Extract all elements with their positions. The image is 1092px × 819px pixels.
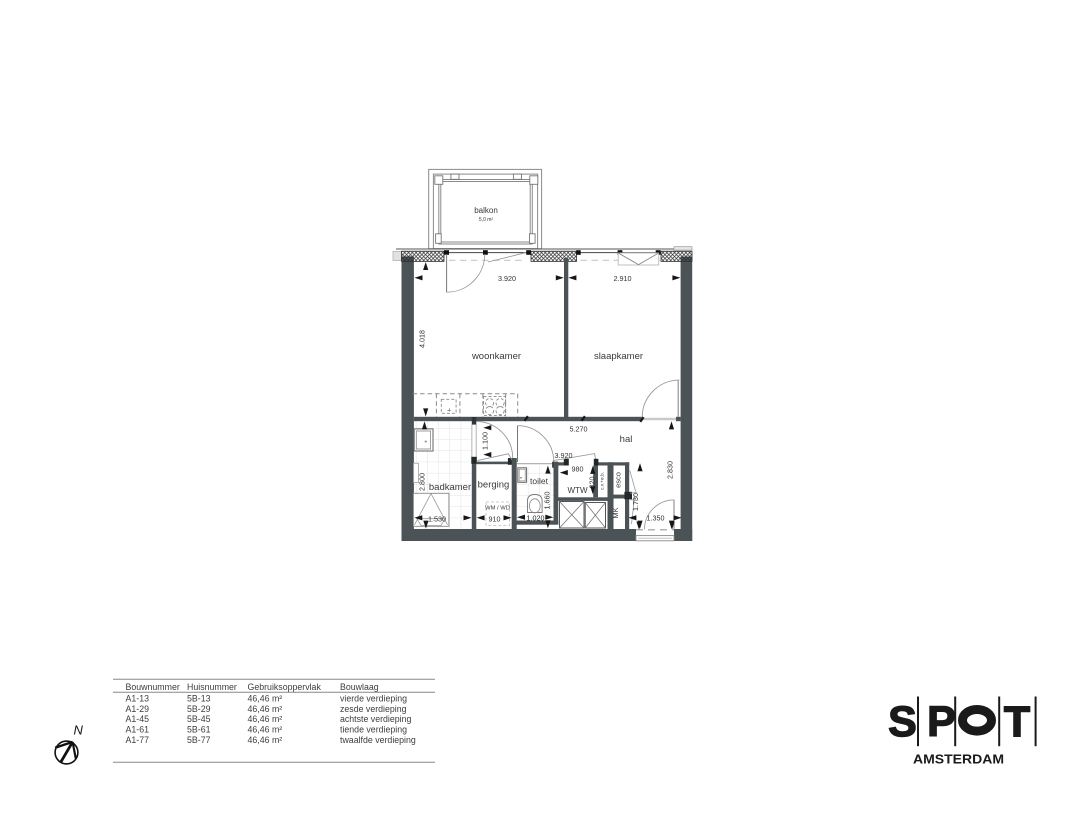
- svg-text:Huisnummer: Huisnummer: [187, 682, 237, 692]
- svg-text:A1-29: A1-29: [126, 704, 150, 714]
- svg-text:T: T: [1004, 698, 1030, 746]
- svg-text:1.020: 1.020: [527, 514, 545, 523]
- svg-text:Bouwnummer: Bouwnummer: [126, 682, 180, 692]
- svg-text:WM / WD: WM / WD: [485, 506, 510, 512]
- svg-text:N: N: [74, 723, 84, 738]
- svg-text:1.660: 1.660: [543, 492, 552, 510]
- svg-text:1.350: 1.350: [647, 514, 665, 523]
- svg-text:46,46 m²: 46,46 m²: [248, 735, 283, 745]
- svg-text:4.018: 4.018: [418, 330, 427, 348]
- svg-text:980: 980: [572, 464, 584, 473]
- svg-text:1.530: 1.530: [428, 514, 446, 523]
- svg-text:balkon: balkon: [474, 206, 498, 215]
- svg-text:P: P: [927, 698, 956, 746]
- svg-text:slaapkamer: slaapkamer: [594, 351, 643, 362]
- svg-text:c.v.+e.b.: c.v.+e.b.: [600, 472, 606, 490]
- svg-text:5B-29: 5B-29: [187, 704, 211, 714]
- svg-text:hal: hal: [620, 434, 633, 445]
- svg-text:twaalfde verdieping: twaalfde verdieping: [340, 735, 416, 745]
- svg-text:1.100: 1.100: [481, 432, 490, 450]
- svg-text:46,46 m²: 46,46 m²: [248, 704, 283, 714]
- svg-text:5B-61: 5B-61: [187, 725, 211, 735]
- svg-text:berging: berging: [478, 480, 510, 491]
- svg-text:46,46 m²: 46,46 m²: [248, 725, 283, 735]
- svg-text:A1-13: A1-13: [126, 694, 150, 704]
- svg-text:S: S: [888, 698, 917, 746]
- svg-text:Bouwlaag: Bouwlaag: [340, 682, 379, 692]
- svg-text:A1-77: A1-77: [126, 735, 150, 745]
- svg-text:5B-13: 5B-13: [187, 694, 211, 704]
- svg-text:3.920: 3.920: [498, 274, 516, 283]
- svg-text:46,46 m²: 46,46 m²: [248, 694, 283, 704]
- svg-text:tiende verdieping: tiende verdieping: [340, 725, 407, 735]
- svg-text:WTW: WTW: [568, 486, 588, 495]
- svg-text:46,46 m²: 46,46 m²: [248, 714, 283, 724]
- svg-text:1.730: 1.730: [631, 493, 640, 511]
- svg-text:vierde verdieping: vierde verdieping: [340, 694, 407, 704]
- svg-text:A1-45: A1-45: [126, 714, 150, 724]
- svg-text:A1-61: A1-61: [126, 725, 150, 735]
- svg-text:5,0 m²: 5,0 m²: [479, 217, 494, 223]
- svg-text:woonkamer: woonkamer: [471, 351, 521, 362]
- svg-text:Gebruiksoppervlak: Gebruiksoppervlak: [248, 682, 322, 692]
- svg-text:zesde verdieping: zesde verdieping: [340, 704, 407, 714]
- svg-text:2.800: 2.800: [418, 473, 427, 491]
- svg-text:2.910: 2.910: [614, 274, 632, 283]
- svg-text:5.270: 5.270: [570, 424, 588, 433]
- svg-text:5B-45: 5B-45: [187, 714, 211, 724]
- svg-text:badkamer: badkamer: [429, 482, 471, 493]
- svg-text:esco: esco: [614, 472, 623, 488]
- svg-text:MK: MK: [611, 507, 620, 518]
- svg-text:toilet: toilet: [530, 476, 549, 486]
- svg-text:3.920: 3.920: [555, 451, 573, 460]
- svg-text:AMSTERDAM: AMSTERDAM: [913, 752, 1004, 766]
- svg-text:5B-77: 5B-77: [187, 735, 211, 745]
- svg-text:910: 910: [489, 514, 501, 523]
- svg-text:achtste verdieping: achtste verdieping: [340, 714, 412, 724]
- svg-text:2.830: 2.830: [666, 461, 675, 479]
